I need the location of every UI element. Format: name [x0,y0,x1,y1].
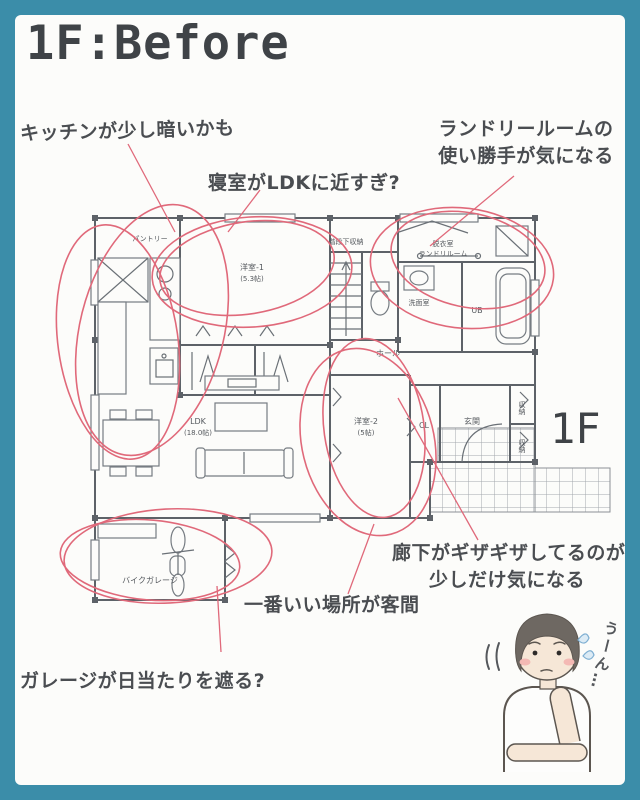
left-blush [520,659,531,666]
label-bedroom2-size: (5帖) [358,428,375,437]
label-bedroom1-size: (5.3帖) [240,274,264,283]
note-kitchen: キッチンが少し暗いかも [20,113,235,146]
tv-board [205,376,279,390]
motorcycle-icon [162,527,194,596]
toilet-icon [371,282,389,315]
washbasin-icon [404,266,434,290]
label-bike-garage: バイクガレージ [122,575,178,585]
note-guest-room: 一番いい場所が客間 [244,590,420,617]
note-laundry: ランドリールームの 使い勝手が気になる [428,114,624,168]
note-laundry-line1: ランドリールームの [428,114,624,141]
page: { "title": "1F:Before", "floor_badge": "… [0,0,640,800]
garage-shelf [98,524,156,538]
sweat-drop-1 [578,634,589,643]
label-storage-bottom: 収納 [518,439,526,454]
label-under-stair-storage: 階段下収納 [329,237,364,246]
label-bedroom2: 洋室-2 [354,416,378,426]
floor-badge: 1F [550,404,601,453]
note-hallway: 廊下がギザギザしてるのが 少しだけ気になる [392,538,622,592]
label-storage-top: 収納 [518,401,526,416]
thinking-person-illustration [487,614,595,772]
kitchen-counter [98,258,180,394]
washer-icon [496,226,528,256]
note-garage: ガレージが日当たりを遮る? [20,666,265,693]
label-unit-bath: UB [471,306,482,315]
label-bedroom1: 洋室-1 [240,262,264,272]
label-laundry-1: 脱衣室 [433,239,454,248]
page-title: 1F:Before [26,16,290,71]
right-eye [557,651,562,656]
note-laundry-line2: 使い勝手が気になる [428,141,624,168]
label-washroom: 洗面室 [409,298,430,307]
crossed-arm [507,744,587,761]
label-pantry: パントリー [132,235,167,243]
coffee-table [215,403,267,431]
note-hallway-line2: 少しだけ気になる [392,565,622,592]
left-eye [533,651,538,656]
label-laundry-2: ランドリルーム [419,250,468,258]
right-blush [564,659,575,666]
label-ldk: LDK [190,417,207,426]
note-bedroom: 寝室がLDKに近すぎ? [208,168,400,195]
note-hallway-line1: 廊下がギザギザしてるのが [392,538,622,565]
dining-table [103,410,159,476]
sofa [196,448,293,478]
bathtub-icon [496,268,530,344]
label-ldk-size: (18.0帖) [184,428,212,437]
label-entrance: 玄関 [464,416,480,426]
